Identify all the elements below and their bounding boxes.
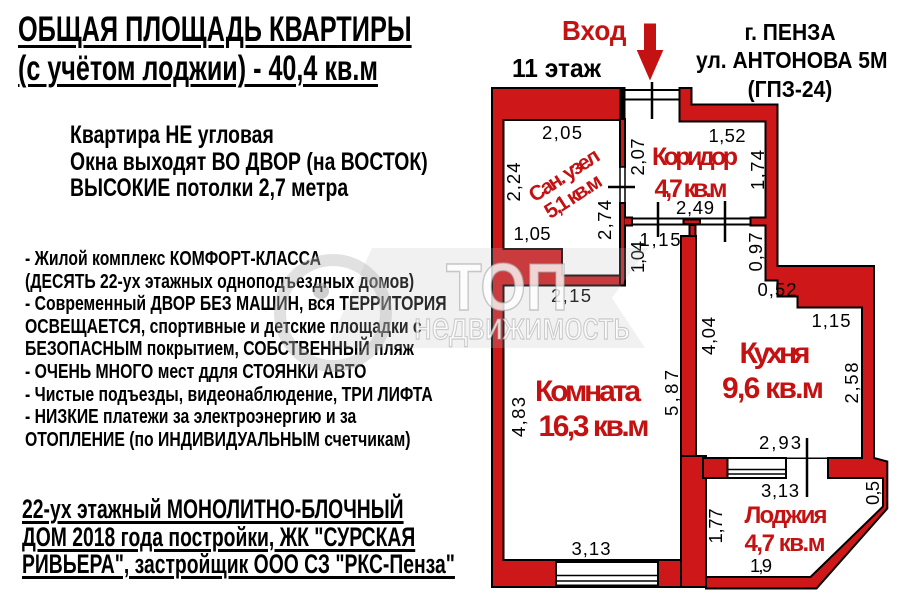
svg-text:5,87: 5,87	[661, 370, 682, 416]
svg-text:Коридор: Коридор	[652, 143, 738, 171]
svg-text:недвижимость: недвижимость	[414, 306, 630, 348]
svg-text:0,5: 0,5	[862, 481, 883, 505]
svg-text:1,9: 1,9	[750, 555, 772, 576]
svg-text:3,13: 3,13	[761, 480, 799, 501]
svg-text:1,05: 1,05	[514, 223, 551, 244]
svg-text:Лоджия: Лоджия	[745, 502, 828, 529]
svg-text:3,13: 3,13	[572, 538, 611, 559]
svg-text:4,04: 4,04	[698, 317, 719, 355]
svg-text:4,7 кв.м: 4,7 кв.м	[745, 530, 826, 557]
svg-text:2,07: 2,07	[627, 139, 648, 176]
svg-text:2,24: 2,24	[503, 163, 524, 202]
svg-text:16,3 кв.м: 16,3 кв.м	[539, 410, 650, 443]
svg-text:Комната: Комната	[535, 375, 641, 408]
svg-text:0,97: 0,97	[745, 233, 766, 272]
svg-text:2,05: 2,05	[542, 122, 582, 143]
svg-text:2,74: 2,74	[594, 200, 615, 240]
svg-text:9,6 кв.м: 9,6 кв.м	[722, 372, 824, 405]
svg-text:4,7 кв.м: 4,7 кв.м	[655, 175, 728, 203]
svg-text:1,74: 1,74	[747, 150, 768, 190]
svg-text:4,83: 4,83	[508, 397, 529, 437]
svg-text:2,58: 2,58	[841, 363, 862, 404]
svg-text:1,77: 1,77	[705, 509, 726, 544]
svg-text:2,93: 2,93	[759, 432, 801, 453]
svg-text:1,15: 1,15	[812, 310, 851, 331]
svg-text:Кухня: Кухня	[740, 337, 811, 370]
svg-text:0,52: 0,52	[758, 279, 797, 300]
